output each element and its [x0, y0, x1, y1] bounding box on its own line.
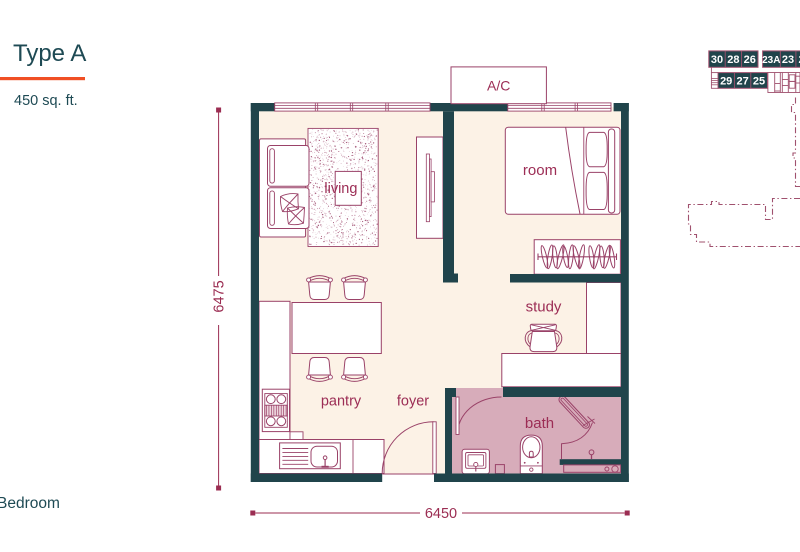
svg-text:foyer: foyer	[397, 393, 429, 409]
svg-text:29: 29	[720, 76, 732, 88]
svg-text:23: 23	[782, 54, 794, 66]
svg-text:28: 28	[727, 54, 739, 66]
svg-text:450 sq. ft.: 450 sq. ft.	[14, 93, 78, 109]
svg-text:6450: 6450	[425, 506, 457, 522]
svg-text:study: study	[526, 299, 562, 316]
svg-text:pantry: pantry	[321, 393, 362, 409]
svg-text:Type A: Type A	[13, 40, 86, 67]
svg-text:27: 27	[736, 76, 748, 88]
svg-text:30: 30	[711, 54, 723, 66]
svg-text:6475: 6475	[212, 280, 228, 312]
svg-text:A/C: A/C	[487, 78, 510, 94]
svg-text:living: living	[324, 181, 357, 197]
svg-text:23A: 23A	[762, 55, 780, 66]
svg-text:25: 25	[753, 76, 765, 88]
svg-text:bath: bath	[525, 415, 554, 432]
svg-text:Bedroom: Bedroom	[0, 495, 60, 512]
svg-text:room: room	[523, 162, 557, 179]
svg-text:26: 26	[744, 54, 756, 66]
